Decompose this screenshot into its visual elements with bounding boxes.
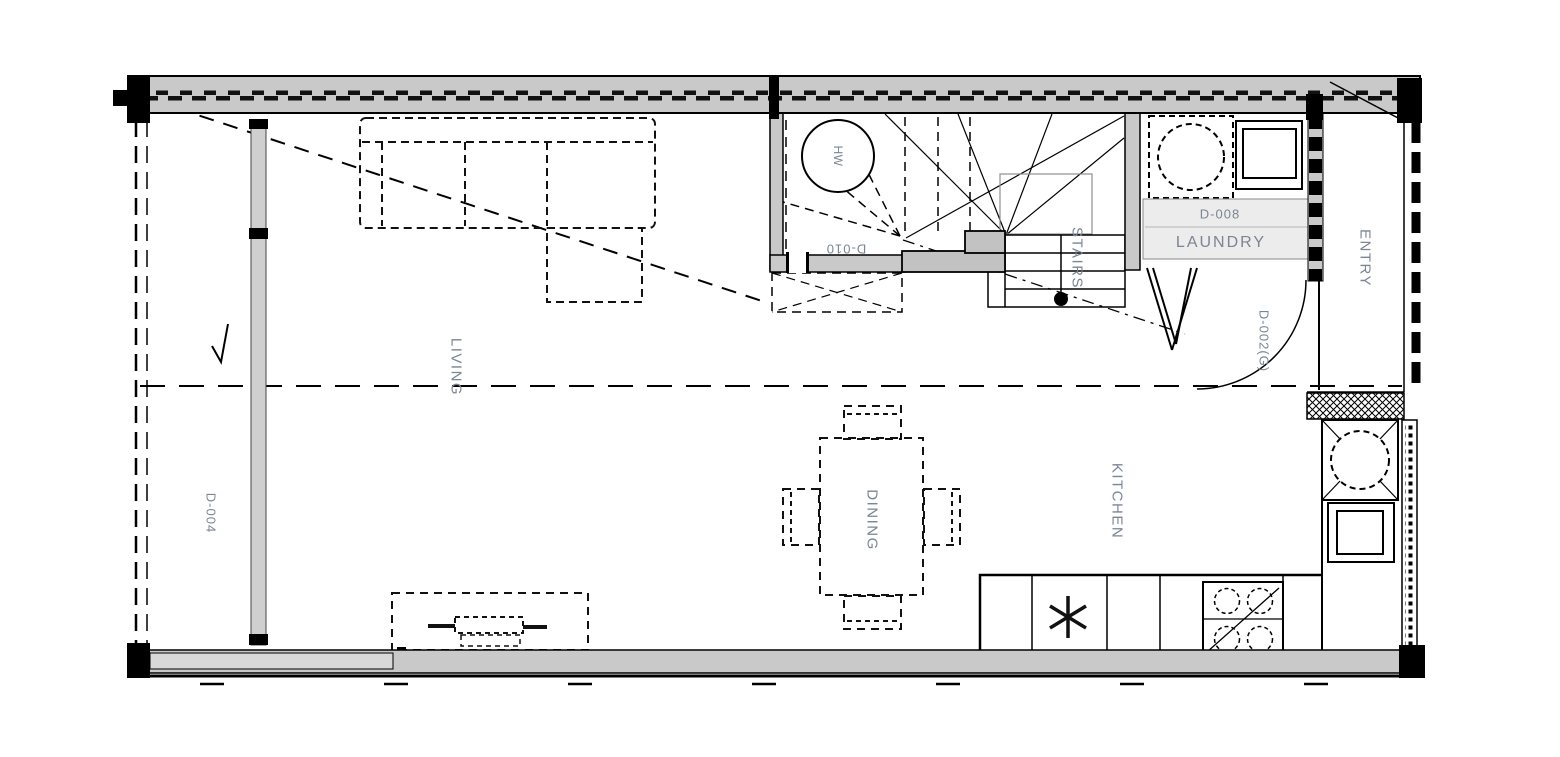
stair-landing xyxy=(1000,174,1092,234)
tv-unit xyxy=(392,593,588,650)
round-sink xyxy=(1322,420,1398,500)
chair-right xyxy=(924,489,960,545)
cooktop xyxy=(1203,582,1283,657)
void-projection-line xyxy=(152,100,768,303)
corner-post-top-right xyxy=(1397,78,1422,123)
level-check-mark xyxy=(212,324,228,362)
room-label-entry: ENTRY xyxy=(1358,229,1373,287)
room-label-living: LIVING xyxy=(449,338,464,396)
entry-door-swing xyxy=(1197,280,1404,392)
laundry-bifold-door xyxy=(1147,268,1197,350)
tv xyxy=(455,617,523,633)
floor-plan: LIVING D-004 DINING KITCHEN STAIRS ENTRY… xyxy=(0,0,1560,757)
newel-post xyxy=(1054,292,1068,306)
room-label-laundry: LAUNDRY xyxy=(1176,235,1266,251)
washing-machine xyxy=(1149,116,1233,198)
entry-threshold xyxy=(1307,393,1404,419)
chair-top xyxy=(844,406,901,439)
corner-post-bottom-right xyxy=(1399,645,1425,678)
chair-left xyxy=(783,489,819,545)
corner-post-bottom-left xyxy=(127,643,150,678)
hot-water-label: HW xyxy=(832,146,844,167)
door-label-d008: D-008 xyxy=(1200,208,1240,221)
laundry-left-wall xyxy=(1125,113,1140,270)
laundry-tub xyxy=(1236,121,1302,189)
room-label-kitchen: KITCHEN xyxy=(1110,463,1125,539)
corner-post-top-left xyxy=(127,75,150,123)
door-label-d002: D-002(G) xyxy=(1258,310,1271,372)
floor-plan-drawing xyxy=(0,0,1560,757)
sofa xyxy=(360,118,655,302)
room-label-dining: DINING xyxy=(865,489,880,551)
interior-walls xyxy=(249,113,1323,667)
door-label-d010: D-010 xyxy=(826,243,866,256)
oven xyxy=(1328,503,1394,562)
door-label-d004: D-004 xyxy=(205,493,218,533)
sliding-door-panel xyxy=(251,123,266,645)
laundry-area xyxy=(1143,116,1315,350)
sink-asterisk-symbol xyxy=(1050,596,1086,638)
stair-enclosure-wall xyxy=(902,251,1005,272)
room-label-stairs: STAIRS xyxy=(1070,227,1085,289)
chair-bottom xyxy=(844,596,901,629)
sofa-chaise xyxy=(547,228,642,302)
